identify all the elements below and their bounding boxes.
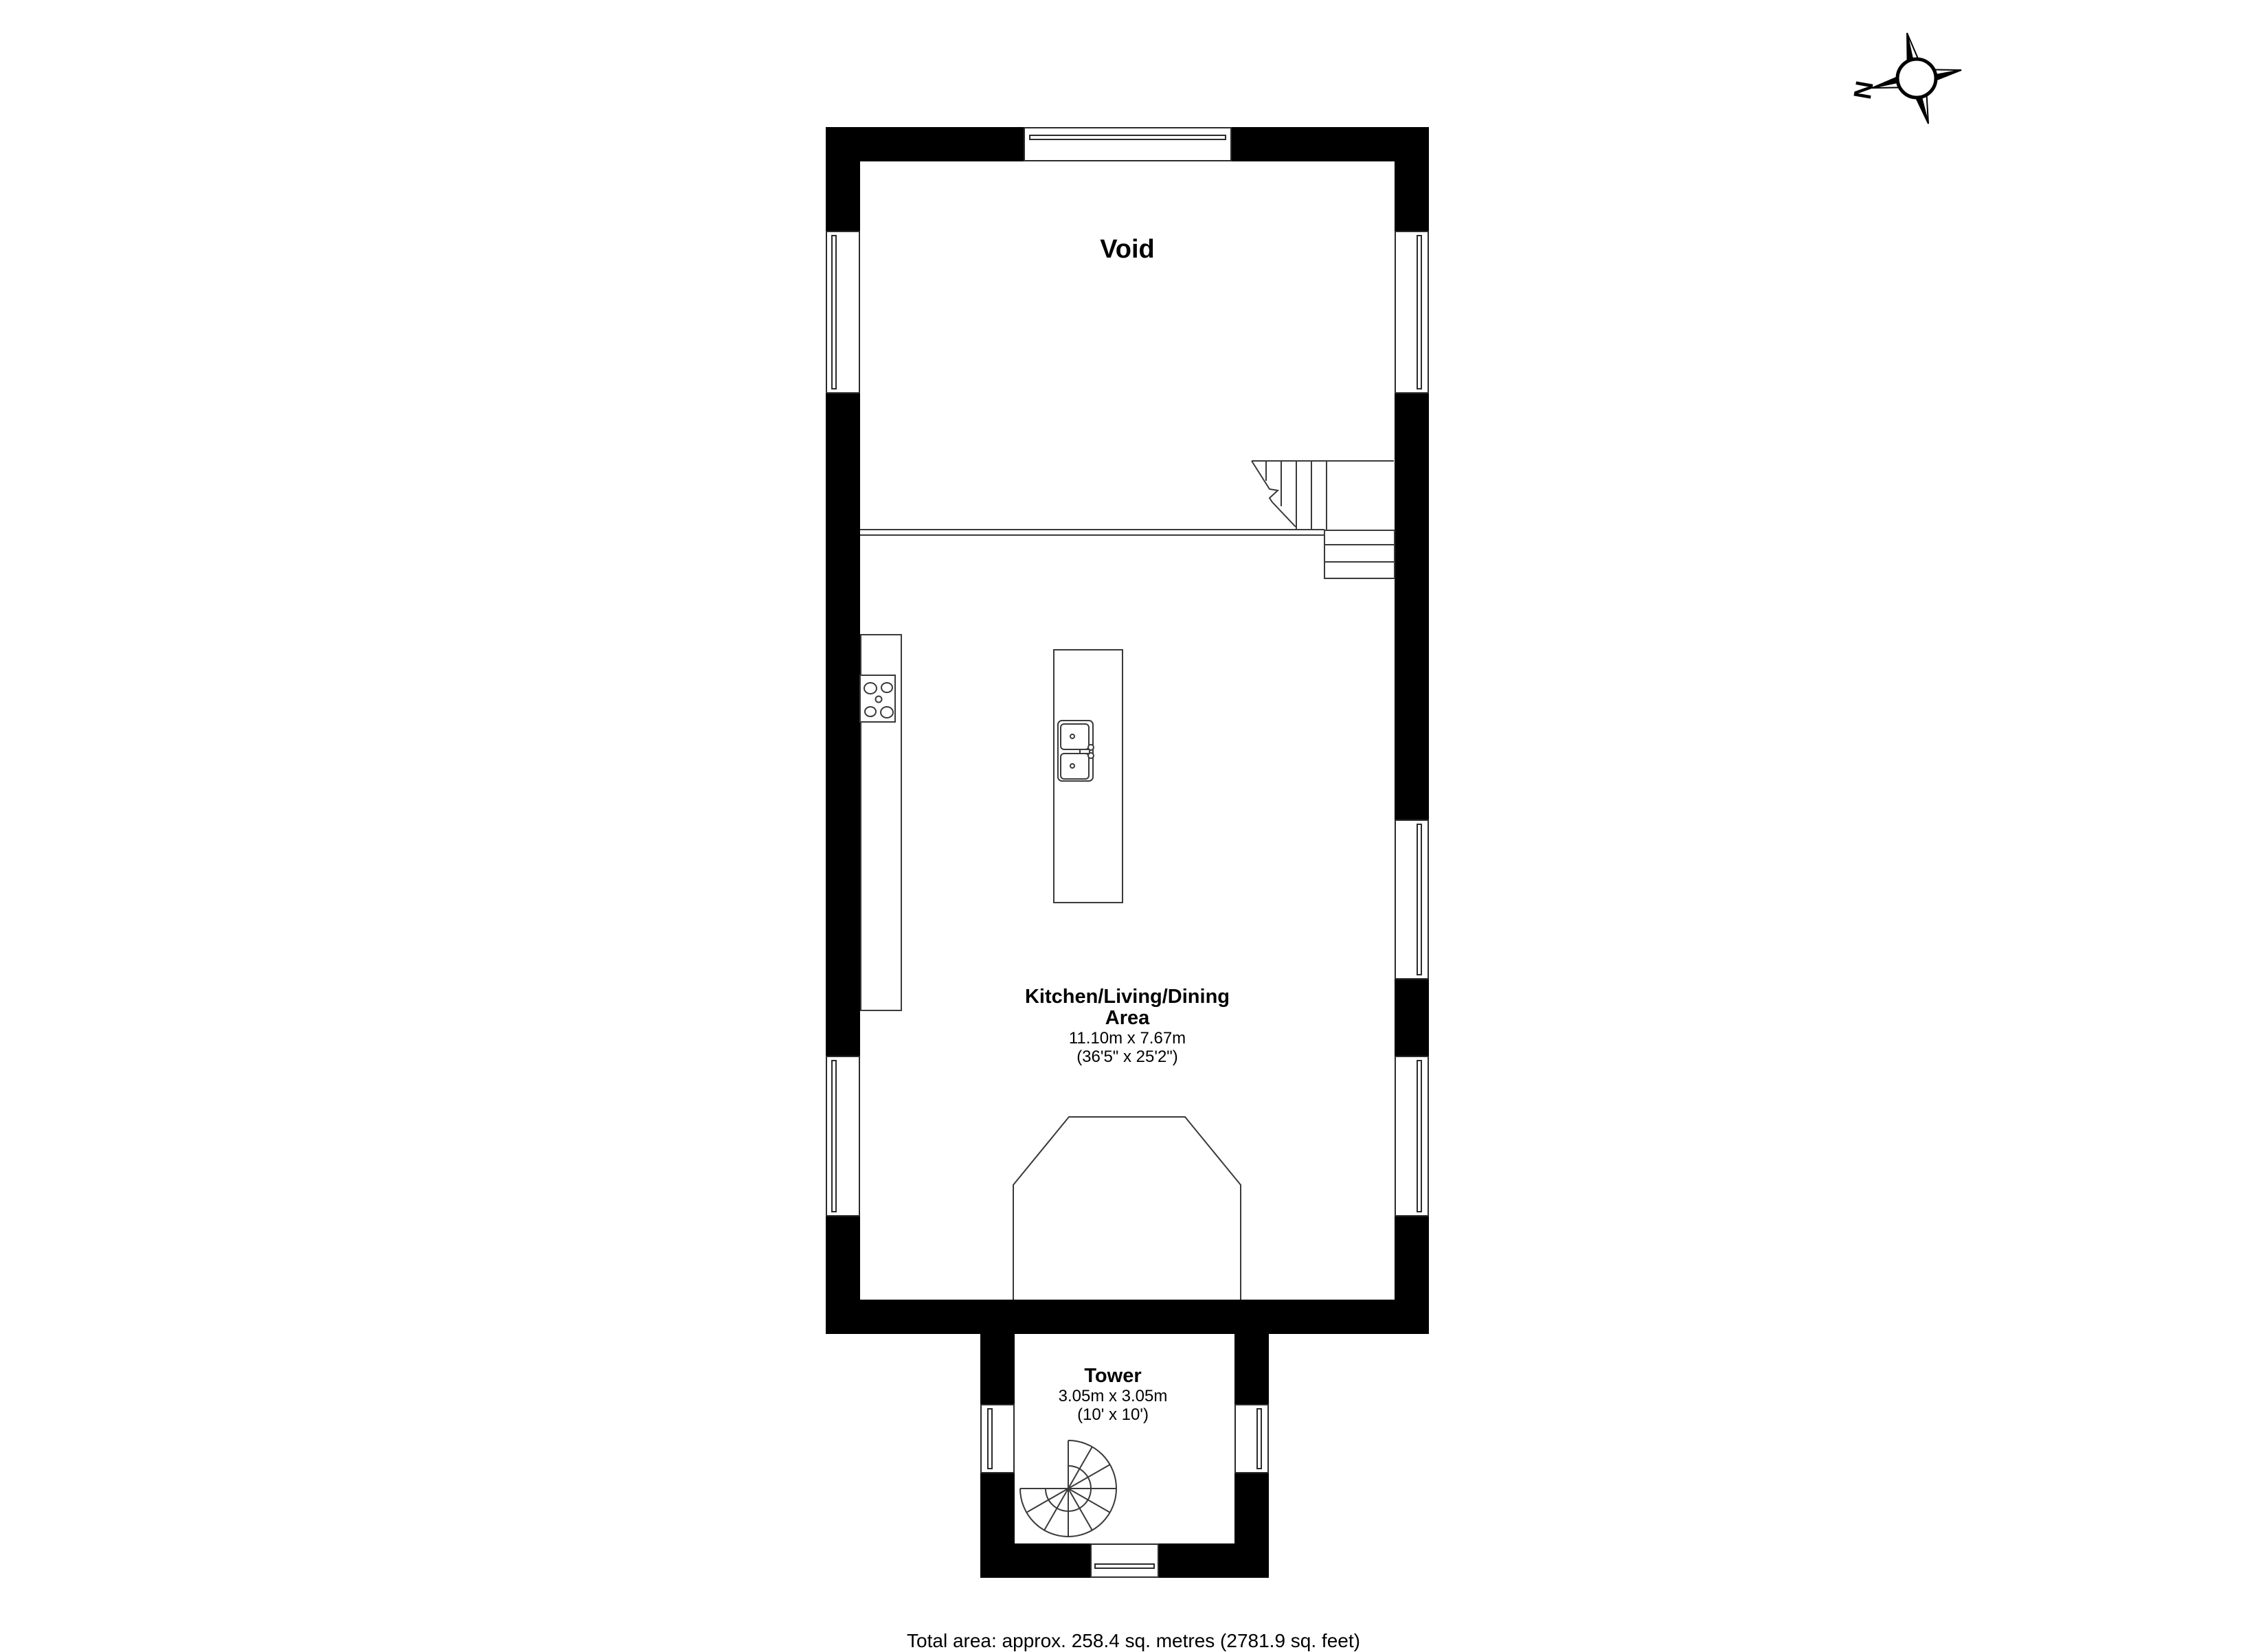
bay-window-outline (1013, 1117, 1241, 1300)
stair-break-line (1252, 461, 1296, 527)
tower-room-name: Tower (1010, 1366, 1216, 1387)
kitchen-room-label: Kitchen/Living/Dining Area 11.10m x 7.67… (860, 986, 1395, 1066)
kitchen-room-dim-metric: 11.10m x 7.67m (860, 1029, 1395, 1048)
kitchen-room-name-line1: Kitchen/Living/Dining (860, 986, 1395, 1008)
staircase-upper (1252, 461, 1394, 530)
spiral-staircase (1020, 1440, 1116, 1537)
tower-room-label: Tower 3.05m x 3.05m (10' x 10') (1010, 1366, 1216, 1424)
sink (1058, 721, 1094, 781)
void-room-label: Void (860, 236, 1395, 264)
kitchen-room-dim-imperial: (36'5" x 25'2") (860, 1048, 1395, 1066)
kitchen-room-name-line2: Area (860, 1008, 1395, 1029)
compass-circle (1897, 59, 1936, 98)
tower-room-dim-imperial: (10' x 10') (1010, 1405, 1216, 1424)
total-area-label: Total area: approx. 258.4 sq. metres (27… (0, 1631, 2267, 1652)
compass-north-label: N (1848, 79, 1879, 102)
staircase-lower-steps (1324, 530, 1395, 578)
floor-plan: N Void Kitchen/Living/Dining Area 11.10m… (0, 0, 2267, 1649)
tower-room-dim-metric: 3.05m x 3.05m (1010, 1387, 1216, 1405)
compass-rose: N (1848, 33, 1961, 124)
hob (860, 675, 895, 722)
room-divider (860, 530, 1324, 535)
